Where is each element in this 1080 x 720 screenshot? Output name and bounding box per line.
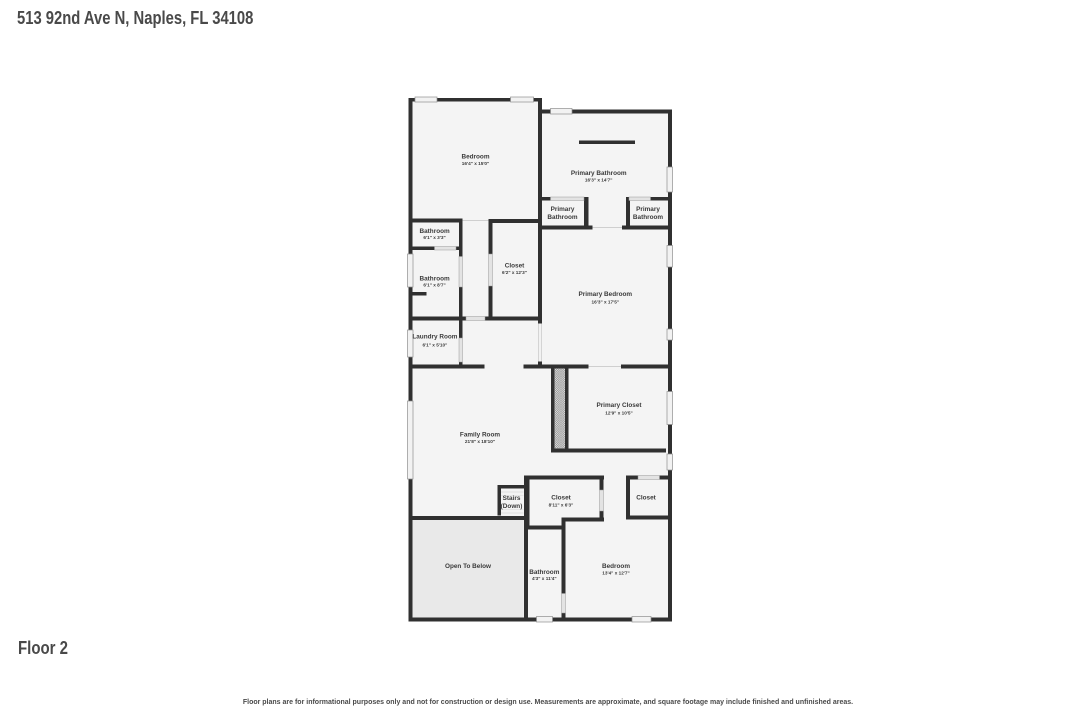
svg-text:Closet: Closet bbox=[505, 262, 525, 269]
svg-text:Bathroom: Bathroom bbox=[420, 228, 450, 235]
svg-text:(Down): (Down) bbox=[501, 503, 523, 510]
svg-text:Laundry Room: Laundry Room bbox=[412, 334, 457, 341]
svg-text:Family Room: Family Room bbox=[460, 431, 500, 438]
svg-text:Open To Below: Open To Below bbox=[445, 563, 491, 570]
svg-text:Closet: Closet bbox=[551, 494, 571, 501]
svg-text:6'1" x 5'10": 6'1" x 5'10" bbox=[422, 342, 447, 347]
svg-text:8'11" x 6'3": 8'11" x 6'3" bbox=[549, 502, 574, 507]
svg-text:Primary: Primary bbox=[636, 206, 660, 213]
svg-text:Bathroom: Bathroom bbox=[633, 214, 663, 221]
svg-text:Stairs: Stairs bbox=[503, 495, 521, 502]
svg-text:Primary: Primary bbox=[551, 206, 575, 213]
svg-text:Bedroom: Bedroom bbox=[461, 154, 489, 161]
svg-text:Primary Bathroom: Primary Bathroom bbox=[571, 170, 627, 177]
svg-text:Closet: Closet bbox=[636, 494, 656, 501]
svg-text:16'3" x 14'7": 16'3" x 14'7" bbox=[585, 178, 613, 183]
svg-text:Primary Bedroom: Primary Bedroom bbox=[578, 291, 632, 298]
svg-text:Bedroom: Bedroom bbox=[602, 563, 630, 570]
svg-text:6'1" x 8'7": 6'1" x 8'7" bbox=[423, 283, 445, 288]
svg-text:Primary Closet: Primary Closet bbox=[596, 402, 642, 409]
svg-text:Bathroom: Bathroom bbox=[420, 276, 450, 283]
svg-text:21'8" x 18'10": 21'8" x 18'10" bbox=[465, 439, 495, 444]
svg-text:Bathroom: Bathroom bbox=[547, 214, 577, 221]
svg-text:13'4" x 12'7": 13'4" x 12'7" bbox=[602, 571, 630, 576]
svg-text:12'9" x 10'5": 12'9" x 10'5" bbox=[605, 411, 633, 416]
svg-text:4'3" x 11'4": 4'3" x 11'4" bbox=[532, 576, 557, 581]
svg-text:6'2" x 12'3": 6'2" x 12'3" bbox=[502, 270, 527, 275]
svg-text:6'1" x 3'3": 6'1" x 3'3" bbox=[423, 235, 445, 240]
svg-text:16'3" x 17'5": 16'3" x 17'5" bbox=[592, 299, 620, 304]
svg-text:16'4" x 15'0": 16'4" x 15'0" bbox=[462, 161, 490, 166]
